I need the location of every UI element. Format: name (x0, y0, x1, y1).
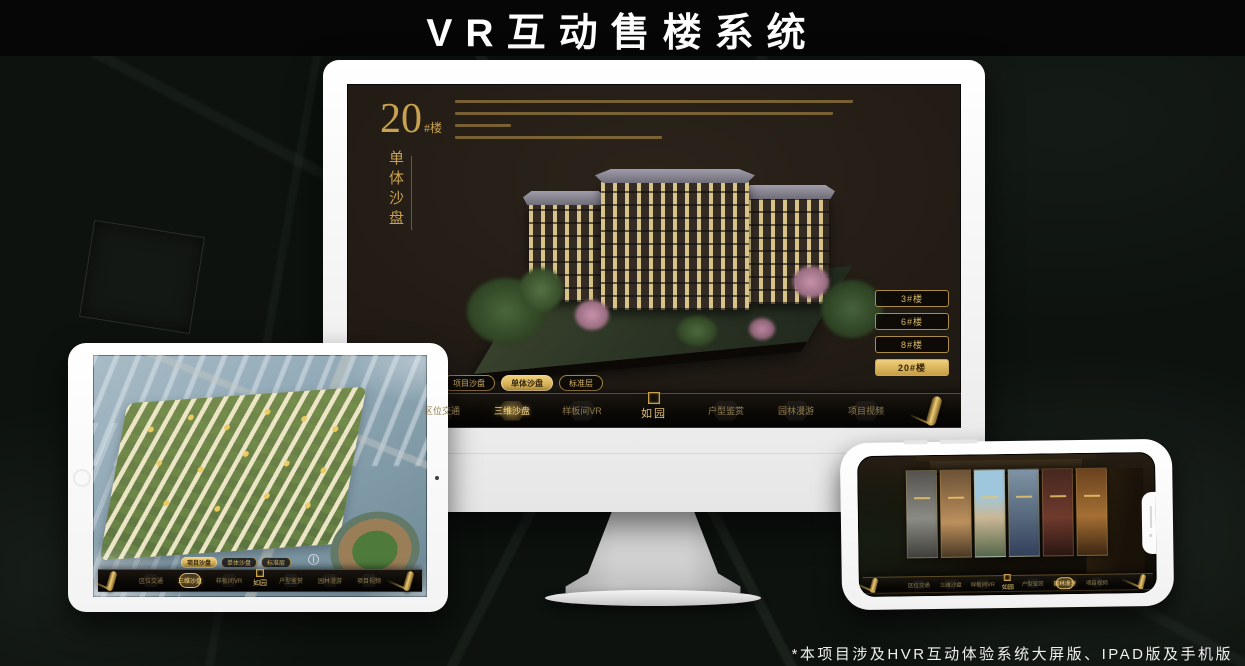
nav-item-project-video[interactable]: 项目视频 (354, 570, 384, 591)
floor-button-8[interactable]: 8#楼 (875, 336, 949, 353)
nav-item-project-video[interactable]: 项目视频 (1084, 575, 1110, 590)
nav-item-showroom-vr[interactable]: 样板间VR (214, 570, 244, 591)
blossom-tree-icon (793, 266, 829, 298)
speaker-icon (1150, 505, 1152, 527)
nav-item-garden-tour[interactable]: 园林漫游 (1052, 575, 1078, 590)
gallery-panel-1[interactable] (906, 470, 938, 558)
scroll-icon[interactable] (105, 570, 117, 591)
tree-icon (677, 316, 717, 346)
brand-logo: 如园 (1002, 573, 1014, 590)
compass-icon (308, 554, 319, 565)
tab-standard-floor[interactable]: 标准层 (559, 375, 603, 391)
panel-caption (982, 496, 998, 498)
nav-item-project-video[interactable]: 项目视频 (842, 394, 890, 427)
scroll-icon[interactable] (1137, 574, 1147, 590)
nav-item-floorplan[interactable]: 户型鉴赏 (702, 394, 750, 427)
tree-icon (519, 268, 563, 312)
tablet-device: 项目沙盘 单体沙盘 标准层 区位交通 三维沙盘 样板间VR 如园 户型鉴赏 园林… (68, 343, 448, 612)
power-button[interactable] (940, 439, 978, 444)
tab-project-sandbox[interactable]: 项目沙盘 (443, 375, 495, 391)
phone-device: 区位交通 三维沙盘 样板间VR 如园 户型鉴赏 园林漫游 项目视频 (840, 439, 1174, 611)
nav-item-garden-tour[interactable]: 园林漫游 (315, 570, 345, 591)
nav-item-garden-tour[interactable]: 园林漫游 (772, 394, 820, 427)
brand-seal-icon (1004, 573, 1011, 580)
tab-single-sandbox[interactable]: 单体沙盘 (221, 557, 257, 568)
floor-button-3[interactable]: 3#楼 (875, 290, 949, 307)
tablet-nav-bar: 区位交通 三维沙盘 样板间VR 如园 户型鉴赏 园林漫游 项目视频 (98, 569, 422, 592)
camera-icon (1149, 533, 1152, 536)
floor-button-6[interactable]: 6#楼 (875, 313, 949, 330)
phone-screen: 区位交通 三维沙盘 样板间VR 如园 户型鉴赏 园林漫游 项目视频 (857, 452, 1157, 597)
nav-item-location-traffic[interactable]: 区位交通 (906, 577, 932, 592)
blossom-tree-icon (575, 300, 609, 330)
camera-icon (435, 476, 439, 480)
monitor-base (545, 590, 761, 606)
building-subtitle: 单体沙盘 (385, 150, 406, 230)
tab-project-sandbox[interactable]: 项目沙盘 (181, 557, 217, 568)
nav-item-location-traffic[interactable]: 区位交通 (136, 570, 166, 591)
panel-caption (1016, 496, 1032, 498)
tree-icon (821, 280, 883, 338)
volume-button[interactable] (904, 440, 928, 444)
poster: VR互动售楼系统 20#楼 单体沙盘 (0, 0, 1245, 666)
nav-item-3d-sandbox[interactable]: 三维沙盘 (175, 570, 205, 591)
blossom-tree-icon (749, 318, 775, 340)
nav-item-3d-sandbox[interactable]: 三维沙盘 (488, 394, 536, 427)
building-3d-model[interactable] (449, 160, 881, 374)
phone-nav-bar: 区位交通 三维沙盘 样板间VR 如园 户型鉴赏 园林漫游 项目视频 (863, 573, 1153, 594)
building-title: 20#楼 (380, 98, 442, 140)
page-title: VR互动售楼系统 (0, 2, 1245, 58)
gallery-panel-5[interactable] (1042, 468, 1074, 556)
tab-single-sandbox[interactable]: 单体沙盘 (501, 375, 553, 391)
panel-caption (914, 497, 930, 499)
nav-item-floorplan[interactable]: 户型鉴赏 (1020, 575, 1046, 590)
scroll-icon[interactable] (925, 395, 943, 427)
model-main-tower (601, 182, 749, 310)
tablet-view-tabs: 项目沙盘 单体沙盘 标准层 (181, 557, 291, 568)
view-tabs: 项目沙盘 单体沙盘 标准层 (443, 375, 603, 391)
nav-item-floorplan[interactable]: 户型鉴赏 (276, 570, 306, 591)
background-plaque (79, 220, 205, 334)
brand-logo: 如园 (628, 392, 680, 421)
description-text-lines (455, 100, 853, 148)
tab-standard-floor[interactable]: 标准层 (261, 557, 291, 568)
panel-caption (1050, 495, 1066, 497)
brand-logo: 如园 (253, 569, 267, 588)
brand-seal-icon (256, 569, 264, 577)
gallery-panel-3[interactable] (974, 469, 1006, 557)
scroll-icon[interactable] (402, 570, 414, 591)
home-button[interactable] (73, 469, 91, 487)
nav-item-showroom-vr[interactable]: 样板间VR (558, 394, 606, 427)
panel-caption (948, 497, 964, 499)
building-number-unit: #楼 (424, 121, 442, 135)
subtitle-divider (411, 156, 412, 230)
gallery-panel-2[interactable] (940, 470, 972, 558)
phone-notch (1142, 491, 1157, 553)
brand-seal-icon (648, 392, 660, 404)
building-number: 20 (380, 96, 422, 142)
floor-button-group: 3#楼 6#楼 8#楼 20#楼 (875, 290, 949, 376)
floor-button-20[interactable]: 20#楼 (875, 359, 949, 376)
gallery-panel-4[interactable] (1008, 469, 1040, 557)
nav-item-3d-sandbox[interactable]: 三维沙盘 (938, 577, 964, 592)
panel-caption (1084, 495, 1100, 497)
nav-item-showroom-vr[interactable]: 样板间VR (970, 576, 996, 591)
gallery-panel-6[interactable] (1076, 468, 1108, 556)
tablet-screen: 项目沙盘 单体沙盘 标准层 区位交通 三维沙盘 样板间VR 如园 户型鉴赏 园林… (93, 355, 427, 597)
footnote-text: *本项目涉及HVR互动体验系统大屏版、IPAD版及手机版 (792, 643, 1233, 664)
scroll-icon[interactable] (869, 577, 879, 593)
gallery-panels (906, 468, 1108, 559)
